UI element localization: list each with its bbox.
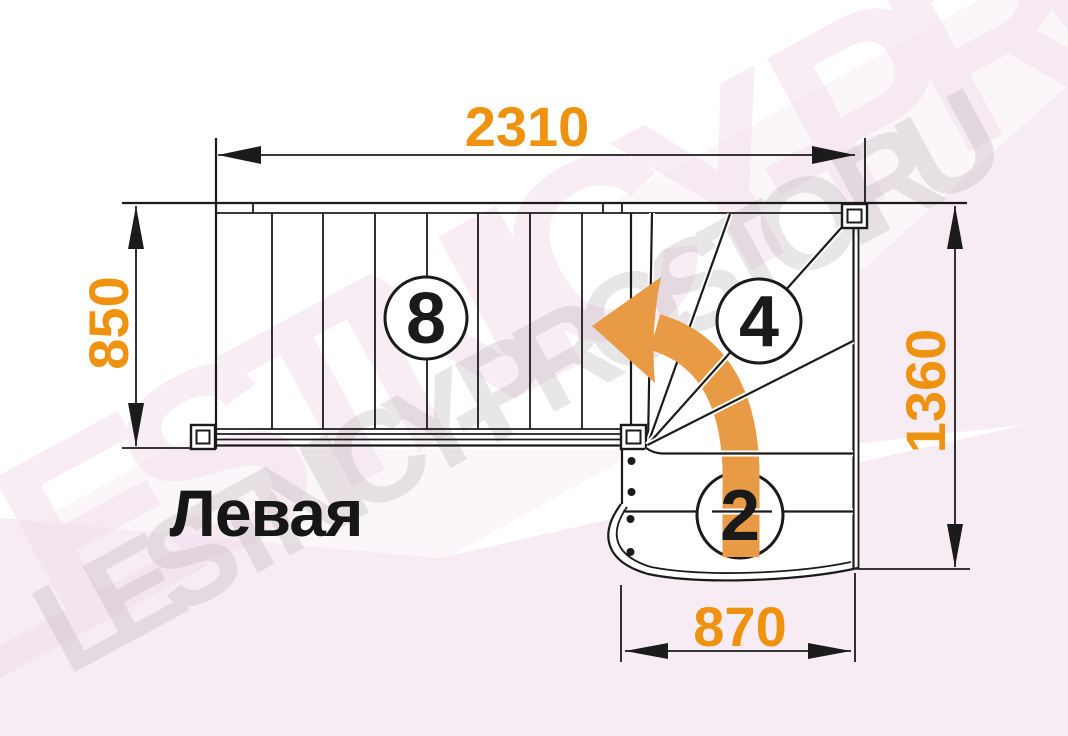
baluster-dot (627, 548, 635, 556)
newel-post-top-right (842, 204, 867, 228)
baluster-dot (628, 488, 636, 496)
plan-title: Левая (170, 476, 363, 550)
staircase-plan-page: LESTNICY-PROSTO.RU LESTNICY-PROSTO.RU (0, 0, 1068, 736)
baluster-dot (628, 457, 636, 465)
step-count-straight-flight: 8 (406, 279, 446, 359)
baluster-dot (627, 515, 635, 523)
staircase-plan-diagram: LESTNICY-PROSTO.RU LESTNICY-PROSTO.RU (0, 0, 1068, 736)
newel-post-bottom-left (191, 425, 215, 449)
step-count-bottom-flight: 2 (720, 476, 760, 556)
dimension-value-left: 850 (77, 276, 140, 369)
dimension-value-right: 1360 (894, 329, 957, 454)
newel-post-center (621, 425, 646, 449)
step-count-winder: 4 (739, 282, 779, 362)
dimension-value-top: 2310 (465, 95, 590, 158)
dimension-value-bottom: 870 (693, 595, 786, 658)
